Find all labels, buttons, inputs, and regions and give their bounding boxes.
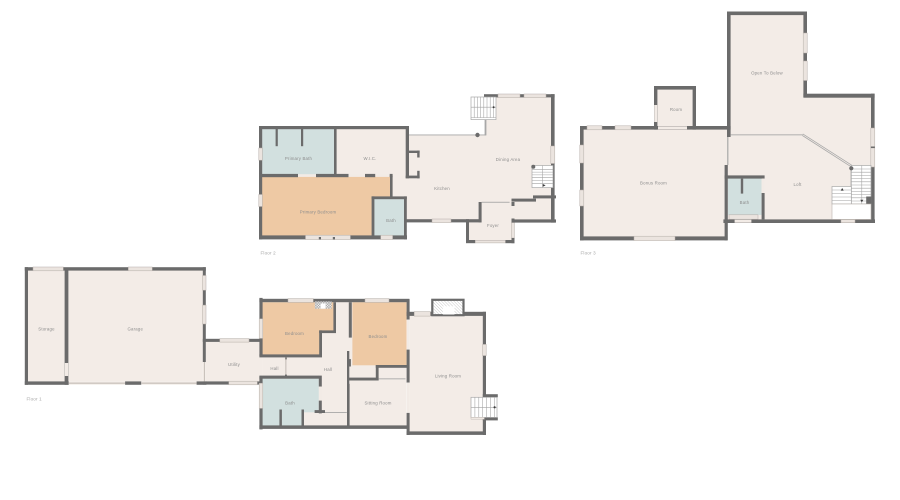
svg-text:Bath: Bath [386, 218, 396, 223]
svg-text:Bedroom: Bedroom [369, 334, 388, 339]
svg-text:Primary Bath: Primary Bath [285, 156, 313, 161]
svg-text:Primary Bedroom: Primary Bedroom [300, 210, 337, 215]
svg-text:Floor 3: Floor 3 [581, 251, 597, 256]
svg-text:Dining Area: Dining Area [496, 157, 521, 162]
svg-text:Sitting Room: Sitting Room [364, 401, 391, 406]
svg-text:Bath: Bath [285, 401, 295, 406]
svg-text:Living Room: Living Room [435, 374, 461, 379]
svg-text:Floor 2: Floor 2 [261, 251, 277, 256]
svg-text:Bonus Room: Bonus Room [640, 181, 667, 186]
svg-text:Foyer: Foyer [487, 223, 499, 228]
svg-text:Hall: Hall [324, 367, 332, 372]
svg-text:Open To Below: Open To Below [751, 71, 783, 76]
svg-text:Kitchen: Kitchen [434, 186, 450, 191]
svg-text:Bath: Bath [740, 200, 750, 205]
svg-text:W.I.C.: W.I.C. [364, 156, 377, 161]
svg-text:Garage: Garage [128, 327, 144, 332]
svg-text:Bedroom: Bedroom [285, 331, 304, 336]
svg-text:Storage: Storage [38, 327, 55, 332]
svg-text:Floor 1: Floor 1 [27, 397, 43, 402]
svg-text:Loft: Loft [794, 182, 803, 187]
svg-text:Hall: Hall [270, 366, 278, 371]
svg-text:Room: Room [670, 107, 683, 112]
svg-text:Utility: Utility [228, 362, 241, 367]
